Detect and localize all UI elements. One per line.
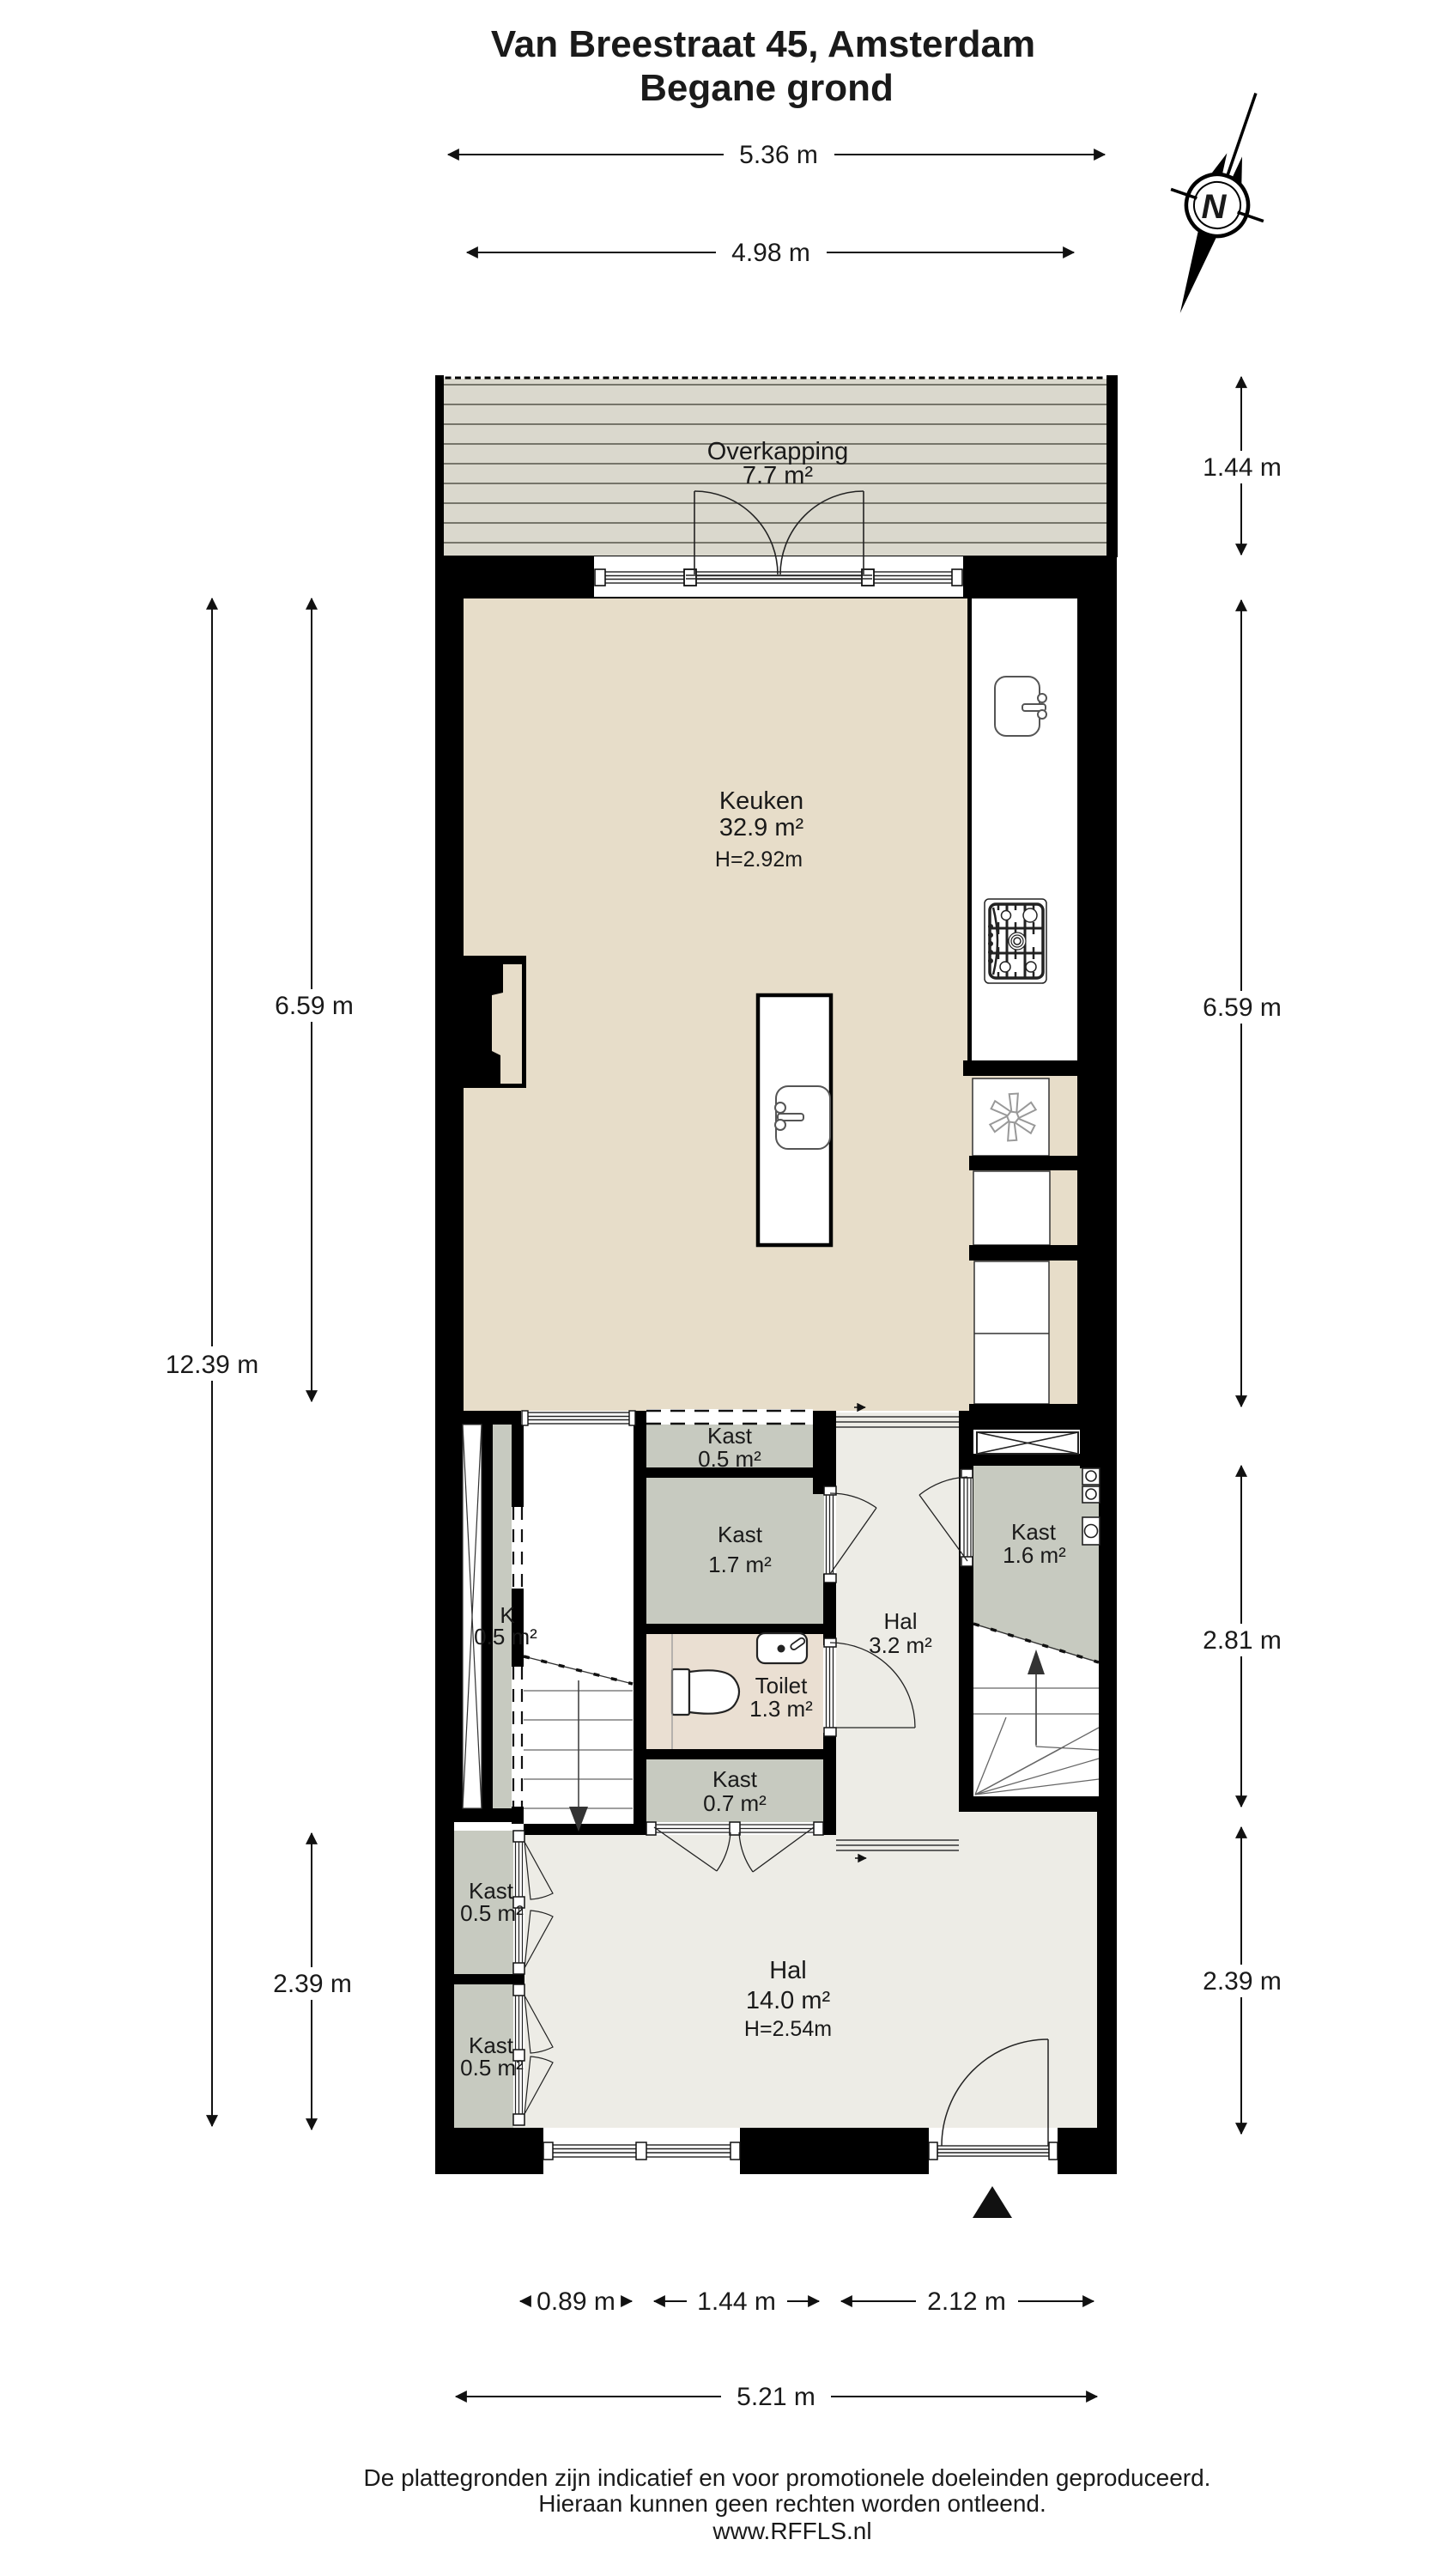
- svg-text:32.9 m²: 32.9 m²: [719, 814, 804, 841]
- svg-text:5.21 m: 5.21 m: [737, 2383, 815, 2411]
- svg-text:5.36 m: 5.36 m: [739, 141, 818, 169]
- svg-text:Begane grond: Begane grond: [640, 67, 894, 109]
- svg-text:3.2 m²: 3.2 m²: [869, 1632, 932, 1658]
- svg-text:6.59 m: 6.59 m: [1203, 993, 1282, 1022]
- svg-text:1.44 m: 1.44 m: [697, 2287, 776, 2316]
- svg-text:H=2.92m: H=2.92m: [715, 848, 803, 872]
- svg-text:2.12 m: 2.12 m: [927, 2287, 1006, 2316]
- svg-text:0.5 m²: 0.5 m²: [474, 1624, 537, 1649]
- svg-text:Kast: Kast: [718, 1522, 763, 1547]
- svg-text:N: N: [1202, 188, 1228, 226]
- svg-text:6.59 m: 6.59 m: [275, 992, 354, 1020]
- svg-text:0.5 m²: 0.5 m²: [698, 1446, 761, 1472]
- svg-text:Kast: Kast: [1011, 1519, 1057, 1545]
- svg-text:Kast: Kast: [707, 1423, 753, 1449]
- svg-text:0.89 m: 0.89 m: [537, 2287, 615, 2316]
- svg-text:Hieraan kunnen geen rechten wo: Hieraan kunnen geen rechten worden ontle…: [538, 2490, 1046, 2517]
- svg-text:0.5 m²: 0.5 m²: [460, 1900, 524, 1926]
- svg-text:1.44 m: 1.44 m: [1203, 453, 1282, 482]
- svg-text:Van Breestraat 45, Amsterdam: Van Breestraat 45, Amsterdam: [491, 23, 1035, 65]
- svg-text:Toilet: Toilet: [755, 1673, 808, 1698]
- svg-text:1.6 m²: 1.6 m²: [1003, 1542, 1066, 1568]
- svg-text:Hal: Hal: [769, 1957, 807, 1984]
- svg-text:www.RFFLS.nl: www.RFFLS.nl: [712, 2518, 871, 2544]
- svg-text:De plattegronden zijn indicati: De plattegronden zijn indicatief en voor…: [364, 2464, 1211, 2491]
- svg-text:12.39 m: 12.39 m: [166, 1351, 258, 1379]
- svg-text:2.81 m: 2.81 m: [1203, 1626, 1282, 1655]
- svg-text:2.39 m: 2.39 m: [1203, 1967, 1282, 1996]
- svg-text:Keuken: Keuken: [719, 787, 803, 815]
- svg-text:1.3 m²: 1.3 m²: [749, 1696, 813, 1722]
- svg-text:4.98 m: 4.98 m: [731, 239, 810, 267]
- svg-text:7.7 m²: 7.7 m²: [743, 462, 814, 489]
- svg-text:1.7 m²: 1.7 m²: [708, 1552, 772, 1577]
- svg-text:0.5 m²: 0.5 m²: [460, 2055, 524, 2081]
- svg-text:H=2.54m: H=2.54m: [744, 2017, 832, 2041]
- svg-text:14.0 m²: 14.0 m²: [746, 1987, 831, 2014]
- svg-text:Hal: Hal: [883, 1608, 917, 1634]
- svg-text:Kast: Kast: [712, 1766, 758, 1792]
- svg-text:2.39 m: 2.39 m: [273, 1970, 352, 1998]
- svg-text:0.7 m²: 0.7 m²: [703, 1790, 767, 1816]
